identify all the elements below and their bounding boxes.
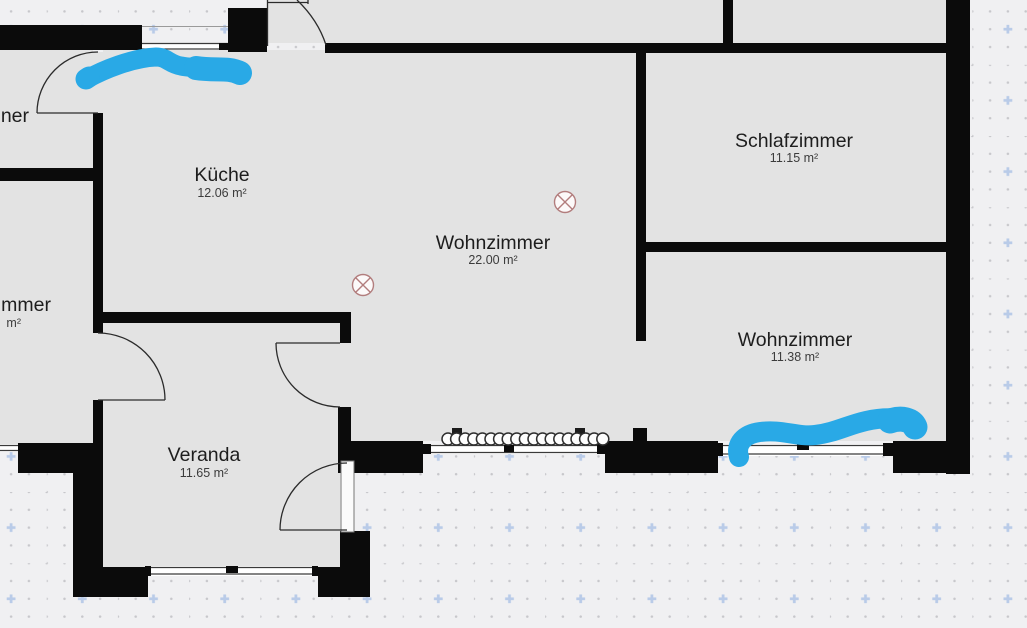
room-area-kueche: 12.06 m² xyxy=(197,186,246,200)
room-label-wohnzimmer-right: Wohnzimmer xyxy=(738,329,853,351)
ceiling-light-icon[interactable] xyxy=(555,192,576,213)
floorplan-canvas: Küche 12.06 m² Wohnzimmer 22.00 m² Schla… xyxy=(0,0,1027,628)
wall-veranda-top[interactable] xyxy=(103,312,341,323)
wall-bottom-left-vertical[interactable] xyxy=(73,473,103,569)
room-top-right[interactable] xyxy=(733,0,946,43)
wall-top-horizontal[interactable] xyxy=(325,43,968,53)
room-area-wohnzimmer-main: 22.00 m² xyxy=(468,253,517,267)
wall-top-divider[interactable] xyxy=(723,0,733,46)
room-area-wohnzimmer-right: 11.38 m² xyxy=(771,350,819,364)
door-gap-3 xyxy=(636,341,646,428)
room-top-left[interactable] xyxy=(267,0,723,43)
ceiling-light-icon[interactable] xyxy=(353,275,374,296)
room-area-veranda: 11.65 m² xyxy=(180,466,228,480)
wall-pillar[interactable] xyxy=(228,8,267,52)
window-veranda-bottom[interactable] xyxy=(145,566,318,576)
wall-right-outer[interactable] xyxy=(946,0,970,474)
room-area-schlafzimmer: 11.15 m² xyxy=(770,151,818,165)
wall-bottom-stub[interactable] xyxy=(633,428,647,443)
wall-veranda-right-a[interactable] xyxy=(340,312,351,343)
wall-center-divider[interactable] xyxy=(636,43,646,341)
wall-left-vertical-b[interactable] xyxy=(93,400,103,445)
wall-veranda-right-b[interactable] xyxy=(338,407,351,443)
wall-veranda-bottom-left[interactable] xyxy=(73,567,148,597)
room-label-schlafzimmer: Schlafzimmer xyxy=(735,130,854,152)
wall-left-divider[interactable] xyxy=(0,168,93,181)
wall-top-left-outer[interactable] xyxy=(0,25,142,50)
door-gap-2 xyxy=(93,333,103,401)
wall-bottom-c[interactable] xyxy=(893,441,970,473)
wall-schlafzimmer-bottom[interactable] xyxy=(636,242,948,252)
wall-veranda-bottom-right[interactable] xyxy=(318,567,370,597)
room-label-wohnzimmer-main: Wohnzimmer xyxy=(436,232,551,254)
room-label-partial-top: ner xyxy=(1,105,30,127)
room-label-kueche: Küche xyxy=(194,164,249,186)
window-left-edge[interactable] xyxy=(0,444,18,452)
wall-left-vertical-a[interactable] xyxy=(93,113,103,333)
room-area-partial-bottom: m² xyxy=(6,316,21,330)
wall-veranda-right-c[interactable] xyxy=(340,531,370,568)
room-label-partial-bottom: mmer xyxy=(1,294,51,316)
room-label-veranda: Veranda xyxy=(168,444,241,466)
wall-bottom-left-block[interactable] xyxy=(18,443,103,473)
wall-bottom-b[interactable] xyxy=(605,441,718,473)
